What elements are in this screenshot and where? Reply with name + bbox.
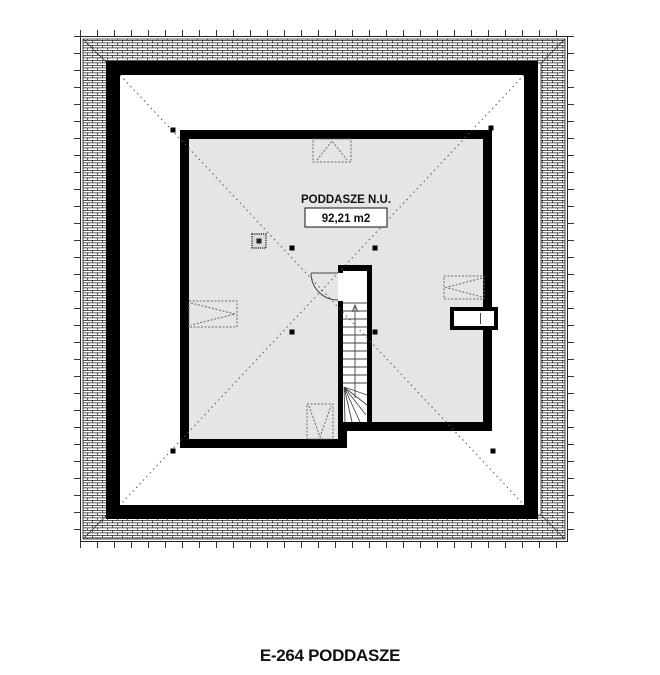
attic-room	[180, 130, 492, 448]
floor-plan-drawing: PODDASZE N.U. 92,21 m2 E-264 PODDASZE	[0, 0, 660, 675]
room-area-value: 92,21 m2	[322, 213, 371, 225]
wall-niche	[452, 309, 496, 328]
room-name-label: PODDASZE N.U.	[301, 194, 391, 206]
chimney-icon	[252, 234, 266, 248]
room-label-group: PODDASZE N.U. 92,21 m2	[301, 194, 391, 227]
drawing-title: E-264 PODDASZE	[0, 646, 660, 666]
attic-floor-plan: PODDASZE N.U. 92,21 m2	[0, 0, 660, 640]
room-floor	[189, 139, 483, 439]
